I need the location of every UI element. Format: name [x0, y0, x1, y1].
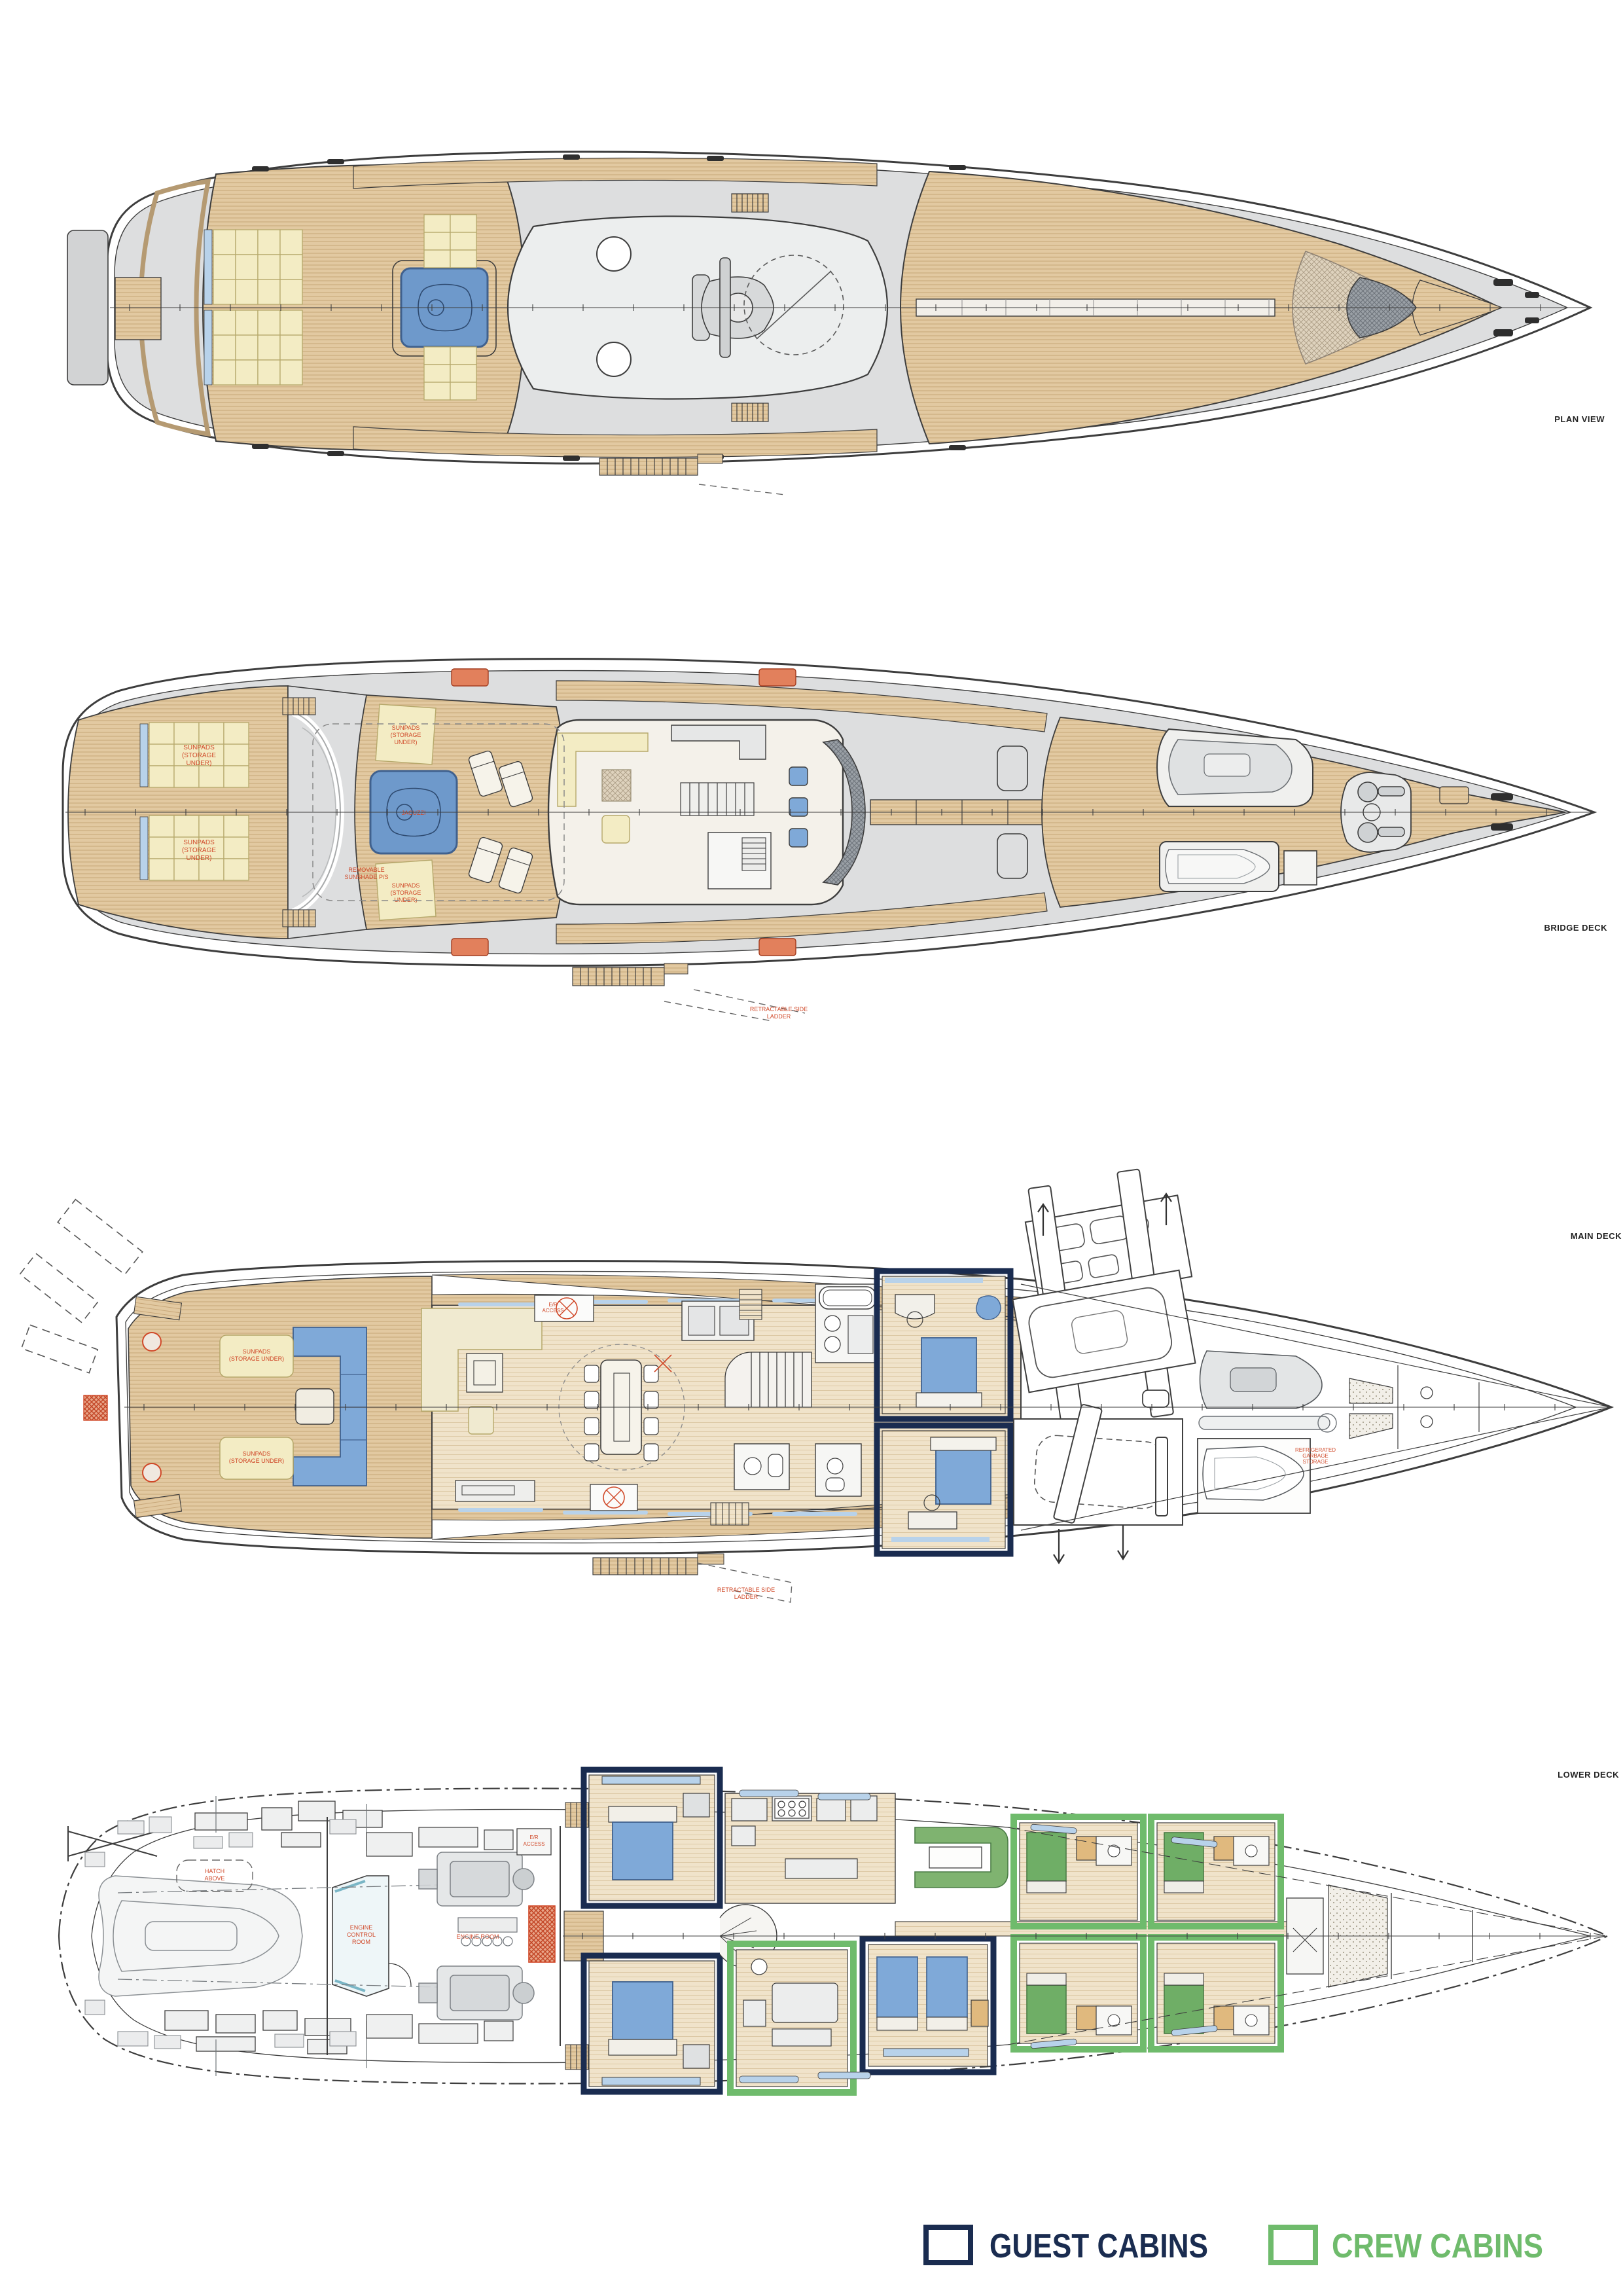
svg-text:CREW CABINS: CREW CABINS [1332, 2227, 1543, 2265]
svg-text:LOWER DECK: LOWER DECK [1558, 1770, 1619, 1780]
svg-text:GUEST CABINS: GUEST CABINS [990, 2227, 1208, 2265]
svg-text:SUNPADS: SUNPADS [243, 1348, 271, 1355]
svg-text:(STORAGE: (STORAGE [182, 752, 216, 759]
svg-text:PLAN VIEW: PLAN VIEW [1554, 414, 1605, 424]
svg-text:CONTROL: CONTROL [347, 1931, 376, 1938]
svg-text:SUNPADS: SUNPADS [183, 839, 215, 846]
svg-text:(STORAGE: (STORAGE [391, 889, 421, 896]
svg-text:REFRIGERATED: REFRIGERATED [1295, 1447, 1336, 1453]
svg-text:RETRACTABLE SIDE: RETRACTABLE SIDE [717, 1587, 775, 1593]
svg-text:(STORAGE: (STORAGE [182, 847, 216, 854]
svg-text:ABOVE: ABOVE [204, 1875, 224, 1882]
svg-text:MAIN DECK: MAIN DECK [1571, 1231, 1622, 1241]
svg-text:JACUZZI: JACUZZI [402, 810, 426, 816]
svg-text:SUNPADS: SUNPADS [243, 1450, 271, 1457]
svg-text:ACCESS: ACCESS [524, 1841, 545, 1847]
svg-text:E/R: E/R [529, 1835, 539, 1840]
svg-text:SUNPADS: SUNPADS [392, 882, 420, 889]
svg-text:RETRACTABLE SIDE: RETRACTABLE SIDE [750, 1006, 808, 1013]
svg-text:ROOM: ROOM [352, 1939, 370, 1945]
svg-text:SUNPADS: SUNPADS [392, 725, 420, 731]
svg-text:UNDER): UNDER) [395, 897, 418, 903]
svg-text:(STORAGE: (STORAGE [391, 732, 421, 738]
svg-text:UNDER): UNDER) [187, 760, 212, 767]
svg-text:STORAGE: STORAGE [1303, 1459, 1329, 1465]
svg-text:ACCESS: ACCESS [543, 1308, 564, 1314]
svg-text:BRIDGE DECK: BRIDGE DECK [1544, 923, 1607, 933]
svg-text:(STORAGE UNDER): (STORAGE UNDER) [229, 1355, 284, 1362]
svg-text:E/R: E/R [548, 1302, 558, 1308]
svg-text:UNDER): UNDER) [395, 739, 418, 745]
svg-text:UNDER): UNDER) [187, 855, 212, 862]
svg-text:LADDER: LADDER [767, 1013, 791, 1020]
svg-text:REMOVABLE: REMOVABLE [348, 867, 384, 873]
svg-text:SUNSHADE P/S: SUNSHADE P/S [344, 874, 388, 880]
svg-text:HATCH: HATCH [205, 1868, 224, 1874]
svg-text:(STORAGE UNDER): (STORAGE UNDER) [229, 1458, 284, 1464]
svg-text:ENGINE: ENGINE [350, 1924, 373, 1931]
svg-text:LADDER: LADDER [734, 1594, 758, 1600]
svg-text:GARBAGE: GARBAGE [1302, 1453, 1329, 1459]
svg-text:SUNPADS: SUNPADS [183, 744, 215, 751]
